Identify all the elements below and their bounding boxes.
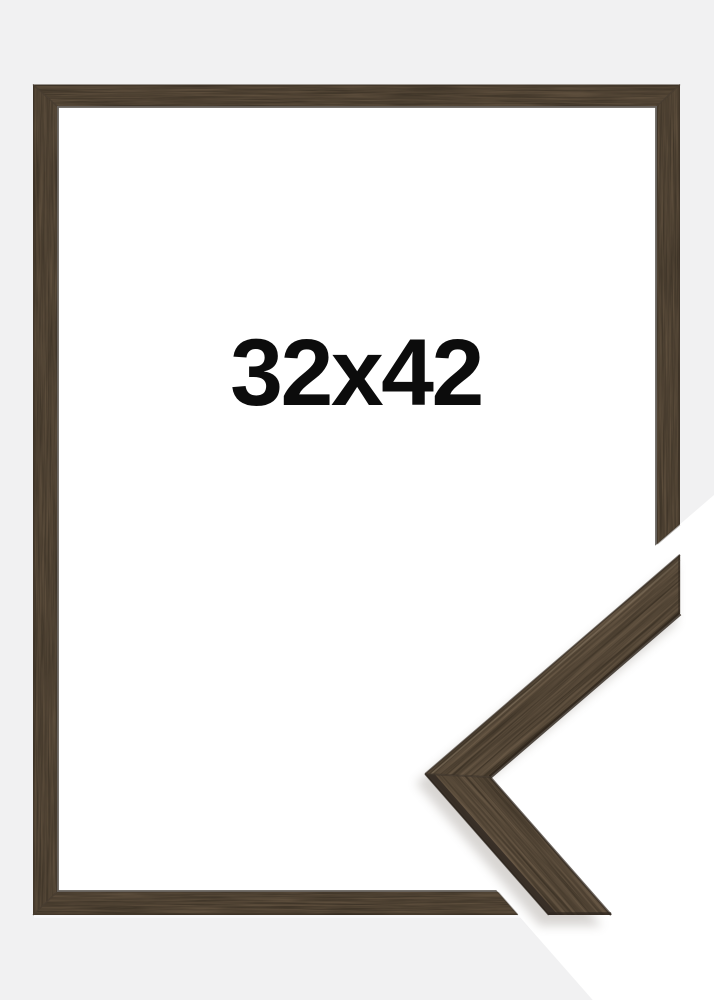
svg-text:32x42: 32x42: [230, 320, 482, 426]
